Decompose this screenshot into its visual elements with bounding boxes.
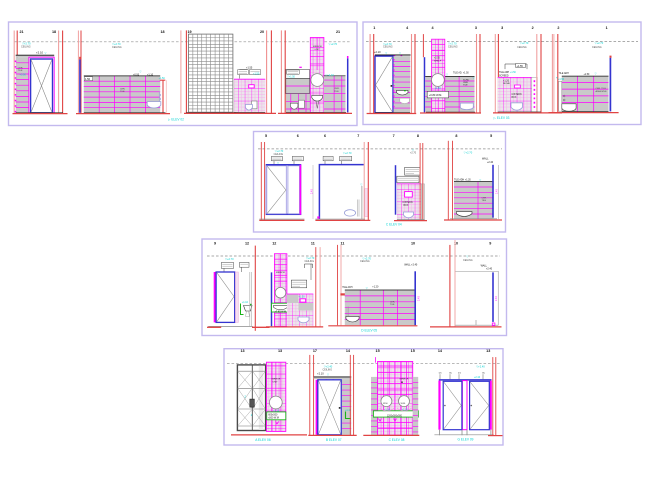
svg-text:+0.90: +0.90	[20, 74, 27, 77]
svg-text:CEILING: CEILING	[323, 368, 333, 371]
svg-text:2.40: 2.40	[417, 296, 420, 301]
svg-text:13: 13	[278, 349, 282, 353]
svg-text:MIRROR: MIRROR	[313, 46, 322, 48]
svg-text:▽: ▽	[366, 287, 368, 290]
svg-text:CISTERN: CISTERN	[512, 94, 522, 96]
svg-text:TILE: TILE	[390, 304, 395, 306]
svg-text:+2.10: +2.10	[474, 376, 481, 379]
svg-text:WALL +2.40: WALL +2.40	[404, 263, 418, 266]
svg-text:C ELEV 08: C ELEV 08	[389, 438, 405, 442]
svg-text:TILE: TILE	[120, 91, 125, 93]
svg-text:CEILING: CEILING	[360, 260, 370, 263]
svg-text:+1.50: +1.50	[558, 78, 565, 81]
svg-text:+1.20: +1.20	[372, 286, 379, 289]
svg-text:MIRROR: MIRROR	[400, 379, 409, 381]
svg-text:6: 6	[324, 134, 326, 138]
svg-text:CEILING: CEILING	[517, 46, 527, 49]
svg-text:x500 W.M: x500 W.M	[268, 417, 279, 420]
svg-text:+2.10: +2.10	[374, 50, 381, 54]
svg-text:▽: ▽	[473, 77, 475, 80]
svg-text:1: 1	[606, 26, 608, 30]
svg-text:+1.50: +1.50	[253, 73, 260, 76]
svg-text:▽+2.70: ▽+2.70	[595, 41, 604, 45]
svg-text:TILE: TILE	[18, 70, 23, 72]
svg-text:B ELEV 07: B ELEV 07	[326, 438, 342, 442]
svg-text:▽+1.50: ▽+1.50	[287, 76, 296, 79]
svg-text:CEILING: CEILING	[305, 260, 315, 263]
svg-text:W.M.: W.M.	[401, 403, 406, 405]
svg-text:17: 17	[313, 349, 317, 353]
svg-text:UNIT: UNIT	[315, 49, 321, 51]
svg-text:TILE AD. +1.50: TILE AD. +1.50	[453, 72, 469, 75]
svg-text:8: 8	[455, 134, 457, 138]
svg-text:▽+2.70: ▽+2.70	[520, 41, 529, 45]
svg-text:2: 2	[557, 26, 559, 30]
svg-text:WALL: WALL	[482, 158, 489, 161]
svg-text:12: 12	[245, 242, 249, 246]
svg-text:▽+2.70: ▽+2.70	[343, 151, 352, 155]
svg-text:+2.40: +2.40	[486, 267, 493, 270]
svg-text:10: 10	[411, 242, 415, 246]
svg-text:MIRROR: MIRROR	[276, 272, 285, 274]
svg-text:▽+1.10: ▽+1.10	[326, 74, 335, 77]
svg-text:▽+2.70: ▽+2.70	[329, 42, 338, 46]
svg-text:W.M.: W.M.	[383, 403, 388, 405]
svg-text:+0.80 W.M.: +0.80 W.M.	[274, 311, 286, 314]
svg-text:+1.50: +1.50	[510, 72, 517, 74]
svg-text:+0.93: +0.93	[133, 73, 140, 76]
svg-text:7: 7	[357, 134, 359, 138]
svg-text:+2.10: +2.10	[317, 372, 324, 376]
svg-text:▽: ▽	[360, 183, 362, 186]
svg-text:CEILING: CEILING	[448, 46, 458, 49]
svg-text:TILE: TILE	[463, 85, 468, 87]
svg-text:C ELEV 04: C ELEV 04	[386, 223, 402, 227]
svg-text:CEILING: CEILING	[112, 46, 122, 49]
svg-text:13: 13	[240, 349, 244, 353]
svg-text:1200x500x500: 1200x500x500	[387, 415, 403, 417]
svg-text:18: 18	[52, 30, 56, 34]
svg-text:BOX: BOX	[404, 205, 409, 207]
svg-text:2.40: 2.40	[495, 296, 498, 301]
svg-text:▽+2.70: ▽+2.70	[464, 150, 473, 154]
svg-text:9: 9	[489, 242, 491, 246]
svg-text:MIRROR: MIRROR	[272, 379, 281, 381]
svg-text:CISTERN: CISTERN	[402, 202, 412, 204]
svg-text:9: 9	[214, 242, 216, 246]
svg-text:TILE ADH +1.20: TILE ADH +1.20	[454, 179, 471, 182]
svg-text:+1.20: +1.20	[503, 80, 510, 83]
svg-text:5: 5	[265, 134, 267, 138]
svg-text:TILE: TILE	[482, 200, 487, 202]
svg-text:18: 18	[160, 30, 164, 34]
svg-text:15: 15	[411, 349, 415, 353]
svg-text:ADHESIVE: ADHESIVE	[596, 90, 608, 93]
svg-text:3: 3	[501, 26, 503, 30]
svg-text:▷ ELEV 02: ▷ ELEV 02	[168, 118, 184, 122]
svg-text:+1.50: +1.50	[435, 87, 442, 90]
svg-text:CEILING: CEILING	[592, 46, 602, 49]
svg-text:3: 3	[475, 26, 477, 30]
svg-text:2: 2	[532, 26, 534, 30]
svg-text:+1.10: +1.10	[242, 301, 249, 304]
svg-text:12: 12	[272, 242, 276, 246]
svg-text:1: 1	[373, 26, 375, 30]
svg-text:CEILING: CEILING	[21, 46, 31, 49]
svg-text:UNIT: UNIT	[273, 381, 279, 383]
svg-text:▽: ▽	[140, 70, 142, 73]
svg-text:+1.55: +1.55	[517, 65, 524, 68]
svg-text:13: 13	[486, 349, 490, 353]
svg-text:+1.50: +1.50	[159, 77, 166, 80]
svg-text:▽: ▽	[446, 73, 448, 76]
svg-text:21: 21	[336, 30, 340, 34]
svg-text:15: 15	[376, 349, 380, 353]
svg-text:+2.55: +2.55	[434, 58, 441, 60]
svg-text:BOX: BOX	[512, 97, 517, 99]
svg-text:TILE ADH: TILE ADH	[559, 72, 570, 75]
svg-text:11: 11	[311, 242, 315, 246]
svg-text:1.50: 1.50	[85, 77, 91, 81]
svg-text:CEILING: CEILING	[383, 46, 393, 49]
svg-text:6: 6	[297, 134, 299, 138]
svg-text:▽+2.40: ▽+2.40	[476, 364, 485, 368]
svg-text:+2.70: +2.70	[410, 152, 417, 155]
svg-text:D ELEV 05: D ELEV 05	[361, 329, 377, 333]
svg-text:2.40: 2.40	[496, 189, 499, 194]
svg-text:7: 7	[393, 134, 395, 138]
svg-text:19: 19	[187, 30, 191, 34]
svg-text:+1.50: +1.50	[584, 74, 591, 76]
svg-text:20: 20	[260, 30, 264, 34]
svg-text:21: 21	[19, 30, 23, 34]
svg-text:TILE: TILE	[334, 91, 339, 93]
svg-text:G ELEV 09: G ELEV 09	[458, 437, 474, 441]
svg-text:+1.10: +1.10	[147, 73, 154, 76]
svg-text:▽: ▽	[595, 72, 597, 75]
svg-text:+1.55: +1.55	[246, 66, 253, 69]
svg-text:A ELEV 06: A ELEV 06	[255, 438, 271, 442]
svg-text:2.40: 2.40	[310, 189, 313, 194]
svg-text:CEILING: CEILING	[463, 259, 473, 262]
svg-text:TILE ADH: TILE ADH	[499, 71, 510, 74]
svg-text:SHELF: SHELF	[434, 60, 442, 62]
svg-text:▷ ELEV 03: ▷ ELEV 03	[494, 116, 510, 120]
svg-text:8: 8	[417, 134, 419, 138]
svg-text:+2.10: +2.10	[36, 51, 44, 55]
svg-text:+2.40: +2.40	[487, 161, 494, 164]
svg-text:5: 5	[490, 134, 492, 138]
svg-text:+1.50: +1.50	[299, 296, 306, 299]
svg-text:TILE ADH: TILE ADH	[342, 286, 353, 289]
svg-text:▽+2.70: ▽+2.70	[225, 257, 234, 261]
svg-text:NICHE: NICHE	[503, 83, 510, 85]
svg-text:+0.80 W.M.: +0.80 W.M.	[429, 93, 442, 97]
svg-text:CEILING: CEILING	[274, 153, 284, 156]
